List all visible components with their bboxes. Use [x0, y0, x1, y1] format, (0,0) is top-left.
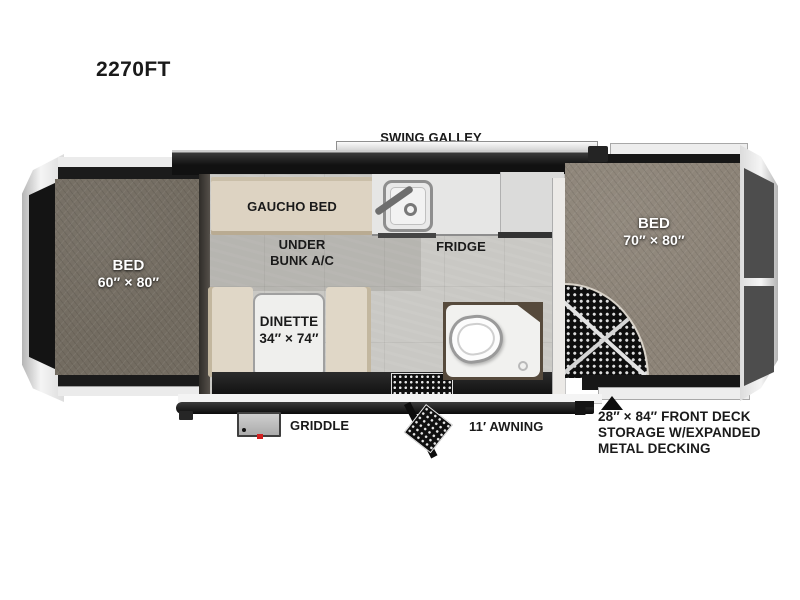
interior-right-wall [552, 178, 566, 394]
right-bed-label: BED 70″ × 80″ [579, 215, 729, 249]
page-title: 2270FT [96, 58, 171, 82]
left-tent-bed: BED 60″ × 80″ [55, 179, 202, 375]
deck-note: 28″ × 84″ FRONT DECK STORAGE W/EXPANDED … [598, 409, 761, 457]
right-tent-end-panel-bottom [744, 286, 774, 386]
left-bed-label: BED 60″ × 80″ [55, 257, 202, 291]
awning-label: 11′ AWNING [469, 419, 543, 434]
griddle-label: GRIDDLE [290, 418, 349, 433]
dinette-label: DINETTE 34″ × 74″ [234, 313, 344, 347]
deck-note-line1: 28″ × 84″ FRONT DECK [598, 409, 761, 425]
awning-rail-latch [179, 411, 193, 420]
dinette-name: DINETTE [234, 313, 344, 330]
counter-shadow-left [378, 233, 436, 238]
floorplan-canvas: 2270FT SWING GALLEY BED 60″ × 80″ GAUCHO… [0, 0, 800, 600]
left-tent-end-panel [29, 182, 57, 370]
dinette-size: 34″ × 74″ [234, 330, 344, 347]
pointer-triangle-icon [601, 396, 623, 410]
toilet-seat [455, 321, 497, 358]
gaucho-bed-label: GAUCHO BED [211, 199, 373, 214]
fridge-label: FRIDGE [408, 239, 514, 254]
griddle-red-indicator [257, 434, 263, 439]
under-bunk-line2: BUNK A/C [250, 253, 354, 269]
deck-note-line2: STORAGE W/EXPANDED [598, 425, 761, 441]
left-bed-size: 60″ × 80″ [55, 274, 202, 291]
right-tent-end-panel-top [744, 168, 774, 278]
right-bed-name: BED [579, 215, 729, 232]
under-bunk-line1: UNDER [250, 237, 354, 253]
galley-latch [588, 146, 608, 162]
deck-note-line3: METAL DECKING [598, 441, 761, 457]
left-bed-name: BED [55, 257, 202, 274]
gaucho-bed: GAUCHO BED [211, 177, 373, 235]
under-bunk-label: UNDER BUNK A/C [250, 237, 354, 269]
drain-icon [518, 361, 528, 371]
faucet-knob [404, 203, 417, 216]
griddle-knob-dot [242, 428, 246, 432]
right-bed-size: 70″ × 80″ [579, 232, 729, 249]
